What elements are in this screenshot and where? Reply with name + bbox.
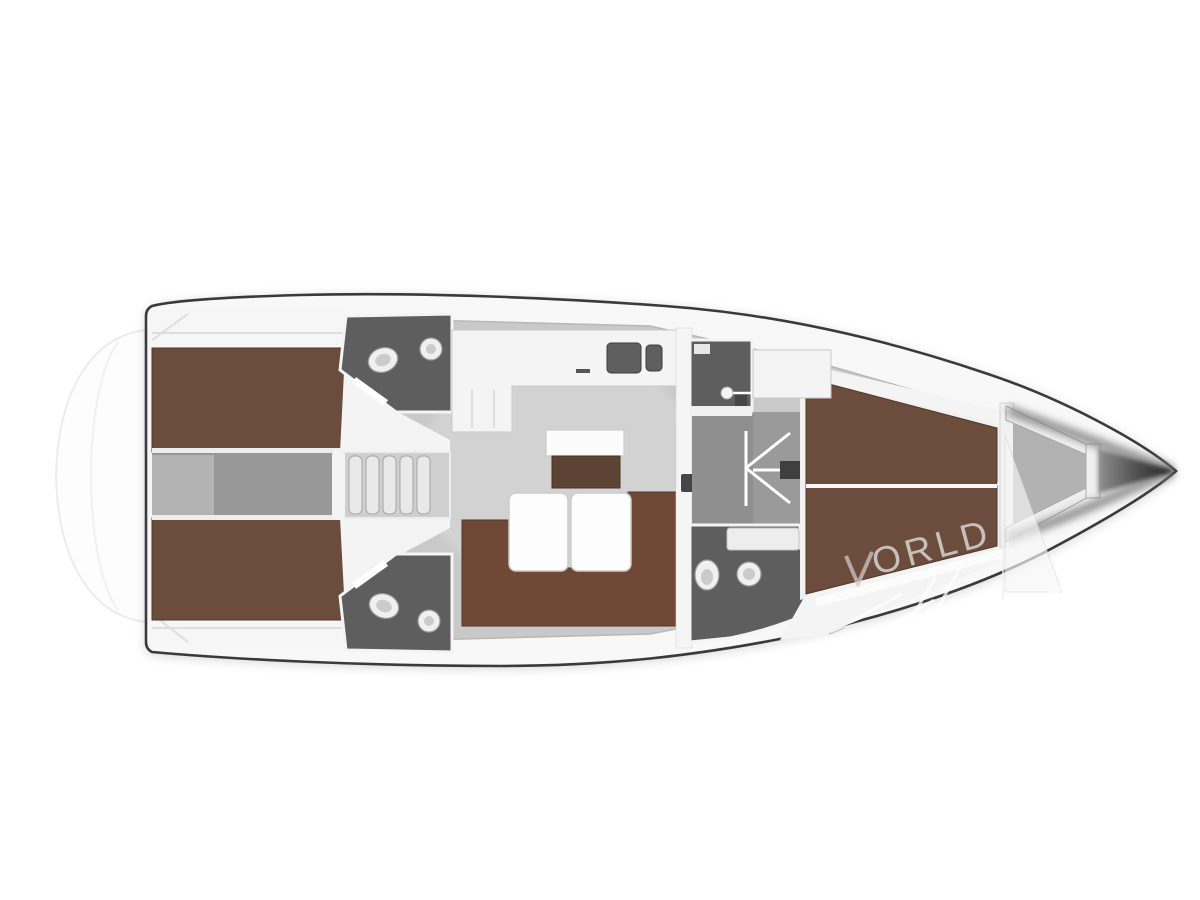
fwd-shower-room (690, 340, 752, 416)
sink-basin-icon (743, 568, 755, 580)
stair-tread (383, 456, 396, 514)
bow-locker-front (1086, 444, 1100, 498)
nav-station (546, 430, 624, 488)
swim-platform-shape (56, 330, 146, 622)
stair-tread (400, 456, 413, 514)
floorplan-svg: ORLD (0, 0, 1200, 900)
passage-floor (692, 414, 753, 526)
stair-tread (417, 456, 430, 514)
stairs-icon (349, 456, 430, 514)
aft-corridor (152, 448, 348, 520)
shower-drain-icon (735, 394, 747, 406)
stair-tread (366, 456, 379, 514)
faucet-icon (576, 369, 590, 373)
aft-cabin-starboard-bed (152, 518, 348, 620)
watermark-wave-line (918, 606, 964, 634)
salon-table-leaf-right (571, 493, 631, 571)
aft-cabin-starboard (152, 518, 348, 628)
nav-desk-top (546, 430, 624, 456)
aft-cabin-port (152, 333, 348, 452)
salon-table-leaf-left (509, 493, 568, 571)
aft-cabin-port-bed (152, 348, 348, 452)
door-knob-icon (721, 387, 733, 399)
yacht-floorplan-canvas: ORLD (0, 0, 1200, 900)
corridor-wall-top (152, 448, 348, 453)
toilet-bowl-icon (701, 569, 713, 585)
galley-sink-small-icon (646, 345, 662, 371)
sink-basin-icon (424, 616, 434, 626)
corridor-wall-bottom (152, 515, 348, 520)
fwd-wardrobe (753, 350, 831, 398)
nav-desk-cabinet (552, 456, 620, 488)
transom-swim-platform (56, 330, 146, 622)
shower-shelf (694, 344, 710, 354)
fwd-passage (692, 412, 812, 526)
transom-door-area (152, 455, 214, 515)
sink-basin-icon (426, 344, 436, 354)
shower-room-sill (690, 406, 752, 416)
galley-sink-icon (607, 343, 641, 373)
engine-cover-cap (332, 450, 345, 520)
watermark-swoosh (948, 585, 1066, 638)
vanity-counter (727, 528, 799, 550)
stair-tread (349, 456, 362, 514)
